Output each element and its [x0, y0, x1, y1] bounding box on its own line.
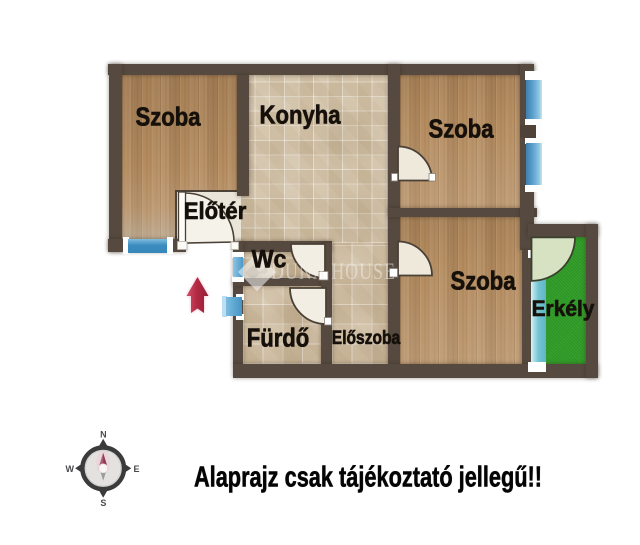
svg-text:N: N: [100, 429, 107, 439]
svg-text:S: S: [100, 498, 106, 508]
svg-text:E: E: [134, 464, 140, 474]
svg-text:W: W: [66, 464, 75, 474]
svg-text:DUNA HOUSE: DUNA HOUSE: [271, 260, 396, 285]
